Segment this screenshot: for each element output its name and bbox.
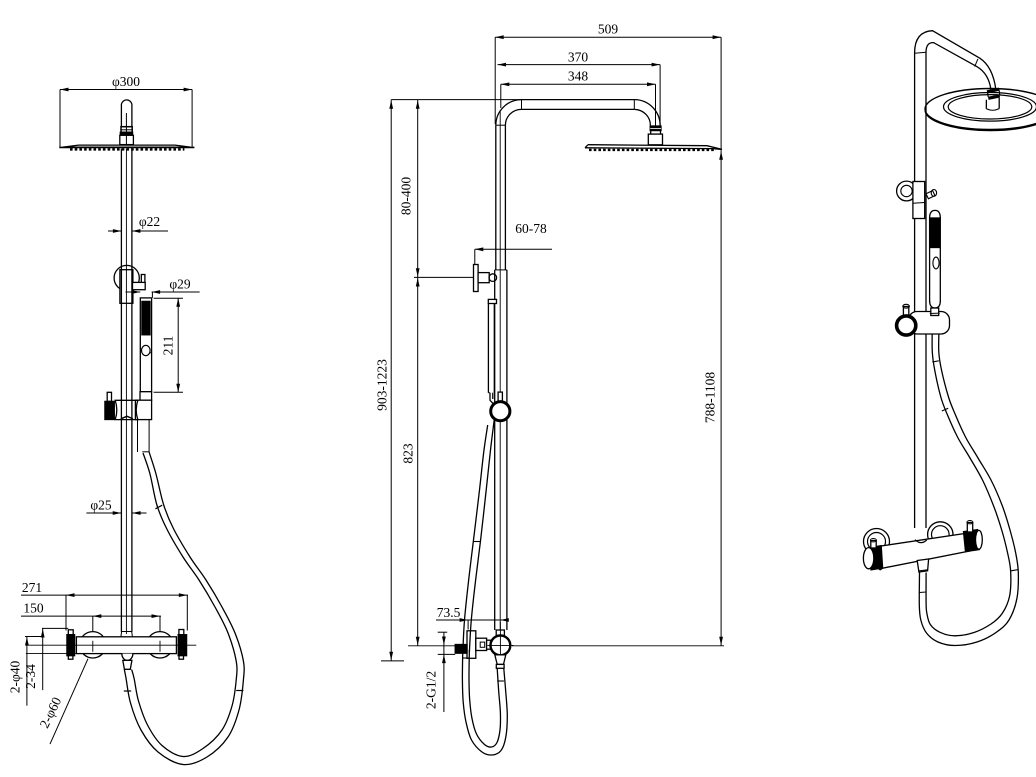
svg-text:φ300: φ300 (112, 74, 140, 89)
svg-text:φ25: φ25 (90, 498, 112, 513)
svg-text:φ22: φ22 (139, 214, 160, 229)
svg-text:903-1223: 903-1223 (375, 359, 390, 411)
svg-text:823: 823 (401, 443, 416, 464)
svg-text:150: 150 (23, 600, 44, 615)
svg-text:60-78: 60-78 (515, 221, 547, 236)
svg-text:271: 271 (22, 580, 42, 595)
svg-text:2-φ40: 2-φ40 (8, 660, 23, 693)
svg-text:788-1108: 788-1108 (703, 372, 718, 423)
svg-text:φ29: φ29 (169, 277, 191, 292)
svg-text:2-34: 2-34 (23, 664, 38, 689)
svg-text:211: 211 (161, 336, 176, 356)
svg-text:73.5: 73.5 (437, 605, 461, 620)
svg-text:2-G1/2: 2-G1/2 (424, 671, 439, 709)
svg-text:509: 509 (598, 22, 619, 37)
svg-text:348: 348 (568, 69, 589, 84)
svg-text:80-400: 80-400 (399, 177, 414, 215)
svg-text:370: 370 (568, 49, 589, 64)
